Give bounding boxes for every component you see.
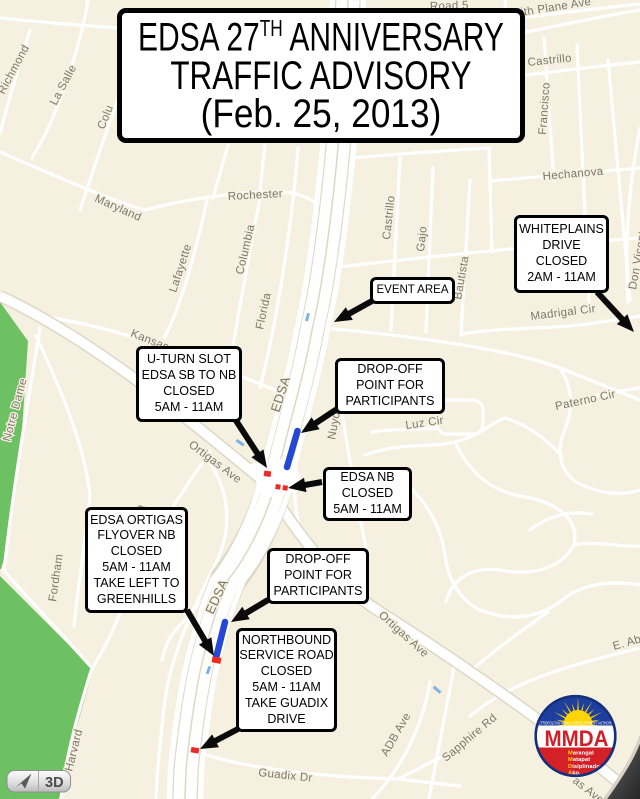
svg-text:MMDA: MMDA	[545, 726, 609, 751]
svg-text:Matapat: Matapat	[568, 757, 590, 763]
svg-text:Marangal: Marangal	[568, 751, 594, 757]
svg-text:3D: 3D	[45, 775, 64, 791]
